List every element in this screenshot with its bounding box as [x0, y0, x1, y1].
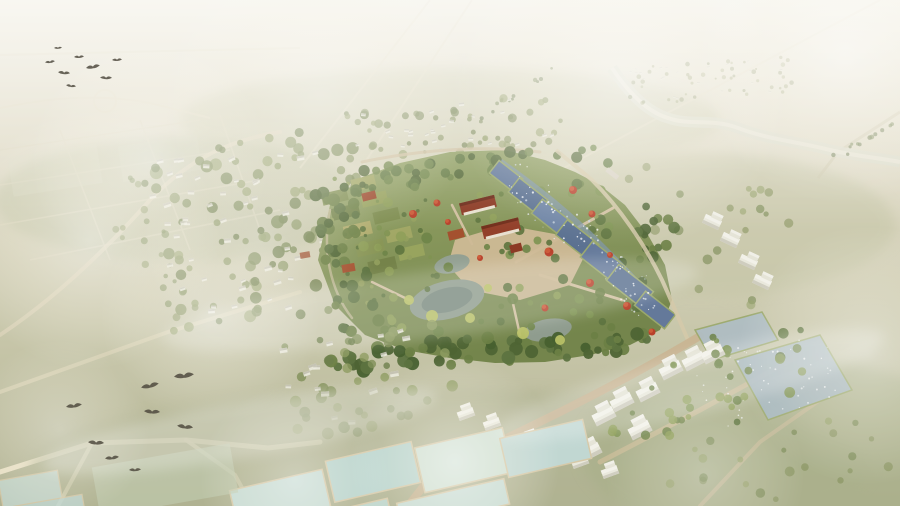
tree — [534, 237, 542, 245]
willow-tree — [555, 335, 565, 345]
tree — [342, 363, 352, 373]
tree — [594, 346, 602, 354]
tree — [428, 255, 432, 259]
sparkle-dot — [620, 256, 621, 257]
tree — [554, 349, 561, 356]
tree — [354, 377, 362, 385]
sparkle-dot — [648, 309, 649, 310]
tree — [614, 336, 622, 344]
sparkle-dot — [633, 311, 635, 313]
tree — [360, 353, 369, 362]
tree — [481, 332, 493, 344]
sparkle-dot — [654, 305, 656, 307]
tree — [418, 343, 427, 352]
flame-tree — [477, 255, 483, 261]
flame-tree — [545, 248, 554, 257]
tree — [380, 373, 389, 382]
tree — [630, 327, 644, 341]
tree — [545, 336, 557, 348]
tree — [324, 356, 334, 366]
sparkle-dot — [641, 304, 643, 306]
tree — [340, 348, 349, 357]
tree — [522, 245, 531, 254]
sparkle-dot — [631, 310, 632, 311]
tree — [563, 354, 571, 362]
tree — [703, 254, 713, 264]
tree — [499, 249, 505, 255]
tree — [607, 323, 615, 331]
tree — [405, 347, 415, 357]
aerial-rendering-canvas — [0, 0, 900, 506]
sparkle-dot — [638, 315, 639, 316]
tree — [583, 349, 593, 359]
tree — [463, 335, 472, 344]
tree — [383, 362, 390, 369]
tree — [394, 345, 406, 357]
tree — [591, 332, 599, 340]
house — [313, 365, 320, 369]
flame-tree — [649, 329, 656, 336]
tree — [695, 285, 703, 293]
tree — [709, 334, 716, 341]
tree — [602, 349, 609, 356]
willow-tree — [517, 327, 529, 339]
tree — [421, 233, 432, 244]
tree — [368, 360, 376, 368]
tree — [382, 250, 387, 255]
tree — [525, 345, 538, 358]
aerial-rendering — [0, 0, 900, 506]
tree — [599, 318, 606, 325]
tree — [407, 255, 412, 260]
tree — [440, 348, 450, 358]
tree — [484, 244, 490, 250]
tree — [502, 351, 516, 365]
sparkle-dot — [652, 307, 654, 309]
tree — [385, 267, 394, 276]
tree — [395, 245, 405, 255]
tree — [713, 246, 722, 255]
